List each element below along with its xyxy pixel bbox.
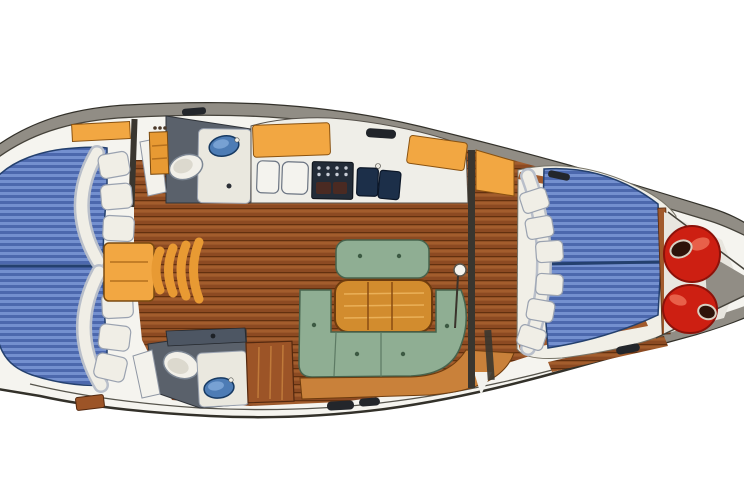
stove-burner-1 xyxy=(316,182,331,194)
stern-deck-hatch xyxy=(75,394,104,410)
stove-knobs-dot xyxy=(326,173,329,176)
bottle-locker-bottles xyxy=(153,126,167,130)
companionway-curved-step-1 xyxy=(156,251,160,290)
aft-locker-shelf xyxy=(72,121,131,141)
hanging-locker-grain-2 xyxy=(270,346,271,399)
table-grain-3 xyxy=(344,317,424,318)
hanging-locker-grain-1 xyxy=(258,347,259,398)
stove-knobs-dot xyxy=(317,166,320,169)
stove-knobs-dot xyxy=(326,166,329,169)
head-top-drain xyxy=(227,184,232,189)
companionway-curved-step-2 xyxy=(169,248,174,293)
deck-window-bottom-2 xyxy=(359,397,381,406)
galley-sink-2 xyxy=(378,170,401,200)
companionway-curved-step-3 xyxy=(181,245,186,296)
aft-pillow-2 xyxy=(100,183,133,211)
bottle-locker-bottles-dot xyxy=(158,126,162,130)
stove-knobs-dot xyxy=(335,166,338,169)
table-grain-1 xyxy=(344,293,424,294)
table-grain-2 xyxy=(344,305,424,306)
saloon-bench-buttons-dot xyxy=(358,254,362,258)
head-top-faucet xyxy=(235,138,239,142)
galley-sink-1 xyxy=(357,168,379,197)
hanging-locker-grain-3 xyxy=(282,345,283,400)
bottle-locker-bottles-dot xyxy=(153,126,157,130)
fridge-lid-1 xyxy=(256,161,279,194)
settee-button-4 xyxy=(445,324,449,328)
aft-pillow-3 xyxy=(102,215,134,242)
fwd-pillow-4 xyxy=(535,273,563,296)
saloon-bench xyxy=(336,240,429,278)
fridge-lid-2 xyxy=(281,162,308,195)
bottle-locker-bottles-dot xyxy=(163,126,167,130)
yacht-interior-plan xyxy=(0,0,744,496)
compression-post xyxy=(454,264,466,276)
head-bottom-knob xyxy=(211,334,216,339)
fwd-pillow-5 xyxy=(525,298,555,323)
bottle-locker-shelf-2 xyxy=(152,158,167,159)
fwd-bulkhead xyxy=(468,150,475,388)
settee-button-2 xyxy=(355,352,359,356)
stove-knobs-dot xyxy=(344,166,347,169)
boat-plan-canvas xyxy=(0,0,744,496)
stove-knobs-dot xyxy=(344,173,347,176)
galley-faucet xyxy=(376,164,381,169)
stove-burner-2 xyxy=(333,182,347,194)
aft-pillow-1 xyxy=(97,151,131,180)
deck-window-bottom-1 xyxy=(327,400,354,410)
saloon-bench-buttons-dot xyxy=(397,254,401,258)
bottle-locker-shelf-1 xyxy=(152,145,167,146)
fwd-pillow-2 xyxy=(524,215,554,240)
settee-button-3 xyxy=(401,352,405,356)
stove-knobs-dot xyxy=(317,173,320,176)
fwd-berth-centerline-seam xyxy=(544,262,659,264)
settee-button-1 xyxy=(312,323,316,327)
bottle-locker xyxy=(149,132,168,175)
aft-pillow-5 xyxy=(98,323,132,352)
companionway-step-box xyxy=(104,243,154,301)
galley-locker-aft xyxy=(252,123,330,158)
head-bottom-faucet xyxy=(229,378,233,382)
stove-knobs-dot xyxy=(335,173,338,176)
fwd-pillow-3 xyxy=(535,240,563,263)
